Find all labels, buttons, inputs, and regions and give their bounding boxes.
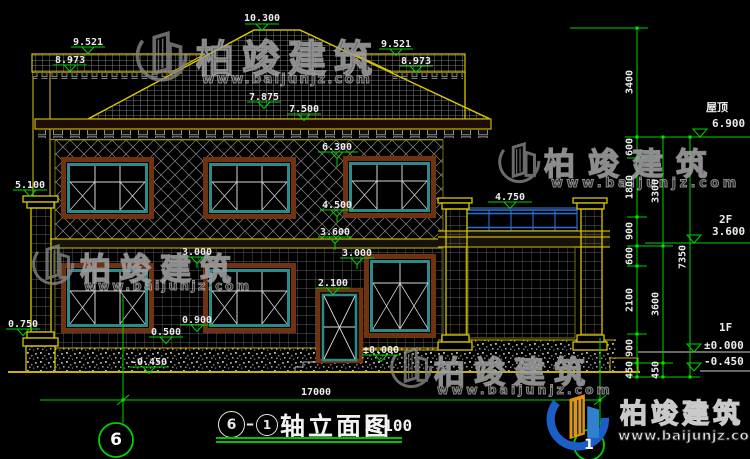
story-label-roof: 屋顶 — [706, 99, 728, 115]
level-label: 3.000 — [342, 248, 372, 259]
window-1f-right — [367, 257, 434, 336]
level-label: 0.750 — [8, 319, 38, 330]
level-label: 5.100 — [15, 180, 45, 191]
cornice — [35, 119, 491, 140]
level-label: 0.900 — [182, 315, 212, 326]
story-value-2f: 3.600 — [712, 225, 745, 238]
level-label: 9.521 — [381, 39, 411, 50]
dim-text: 2100 — [625, 288, 636, 312]
watermark-url: www.baijunjz.com — [84, 278, 252, 293]
level-label: 7.500 — [289, 104, 319, 115]
level-label: ±0.000 — [363, 345, 399, 356]
title-underline — [216, 437, 402, 439]
wing-wall — [466, 247, 575, 338]
window-2f-center — [206, 160, 294, 217]
window-2f-left — [64, 160, 152, 217]
level-label: 8.973 — [55, 55, 85, 66]
level-label: 3.600 — [320, 227, 350, 238]
cad-elevation-canvas: 柏竣建筑 www.baijunjz.com 柏竣建筑 www.baijunjz.… — [0, 0, 750, 459]
level-label: 3.000 — [182, 247, 212, 258]
level-label: 8.973 — [401, 56, 431, 67]
level-label: 4.750 — [495, 192, 525, 203]
dim-text: 600 — [625, 247, 636, 265]
story-value-1f: ±0.000 — [704, 339, 744, 352]
dim-text: 450 — [651, 361, 662, 379]
dim-text: 450 — [625, 361, 636, 379]
watermark-url: www.baijunjz.com — [437, 382, 613, 397]
dim-text: 1800 — [625, 175, 636, 199]
title-bubble-left: 6 — [218, 411, 245, 438]
dim-text: 900 — [625, 339, 636, 357]
axis-number-6: 6 — [110, 430, 122, 450]
dim-text: 900 — [625, 222, 636, 240]
level-label: 0.500 — [151, 327, 181, 338]
level-label: -0.450 — [131, 357, 167, 368]
watermark-logo-icon — [500, 144, 539, 182]
axis-number-1: 1 — [584, 437, 594, 453]
brand-url: www.baijunjz.com — [618, 428, 750, 444]
dim-text: 7350 — [678, 245, 689, 269]
level-label-ridge: 10.300 — [244, 13, 280, 24]
window-2f-right — [346, 159, 434, 216]
level-label: 4.500 — [322, 200, 352, 211]
wing-railing — [467, 208, 577, 231]
level-label: 6.300 — [322, 142, 352, 153]
entrance-door — [318, 290, 361, 361]
watermark-url: www.baijunjz.com — [202, 71, 372, 87]
brand-name: 柏竣建筑 — [620, 392, 744, 431]
dim-text: 3600 — [651, 292, 662, 316]
title-underline — [216, 441, 402, 443]
story-value-roof: 6.900 — [712, 117, 745, 130]
wing-column-right — [573, 198, 607, 350]
dim-text-total-width: 17000 — [301, 387, 331, 398]
title-separator: – — [246, 414, 254, 433]
story-value-ground: -0.450 — [704, 355, 744, 368]
story-label-1f: 1F — [719, 321, 732, 334]
watermark-url: www.baijunjz.com — [551, 176, 740, 191]
dim-text: 600 — [625, 138, 636, 156]
level-label: 2.100 — [318, 278, 348, 289]
drawing-scale: 1:100 — [364, 416, 412, 435]
level-label: 7.875 — [249, 92, 279, 103]
dim-text: 3300 — [651, 179, 662, 203]
dim-text: 3400 — [625, 70, 636, 94]
level-label: 9.521 — [73, 37, 103, 48]
title-bubble-right: 1 — [256, 414, 278, 436]
